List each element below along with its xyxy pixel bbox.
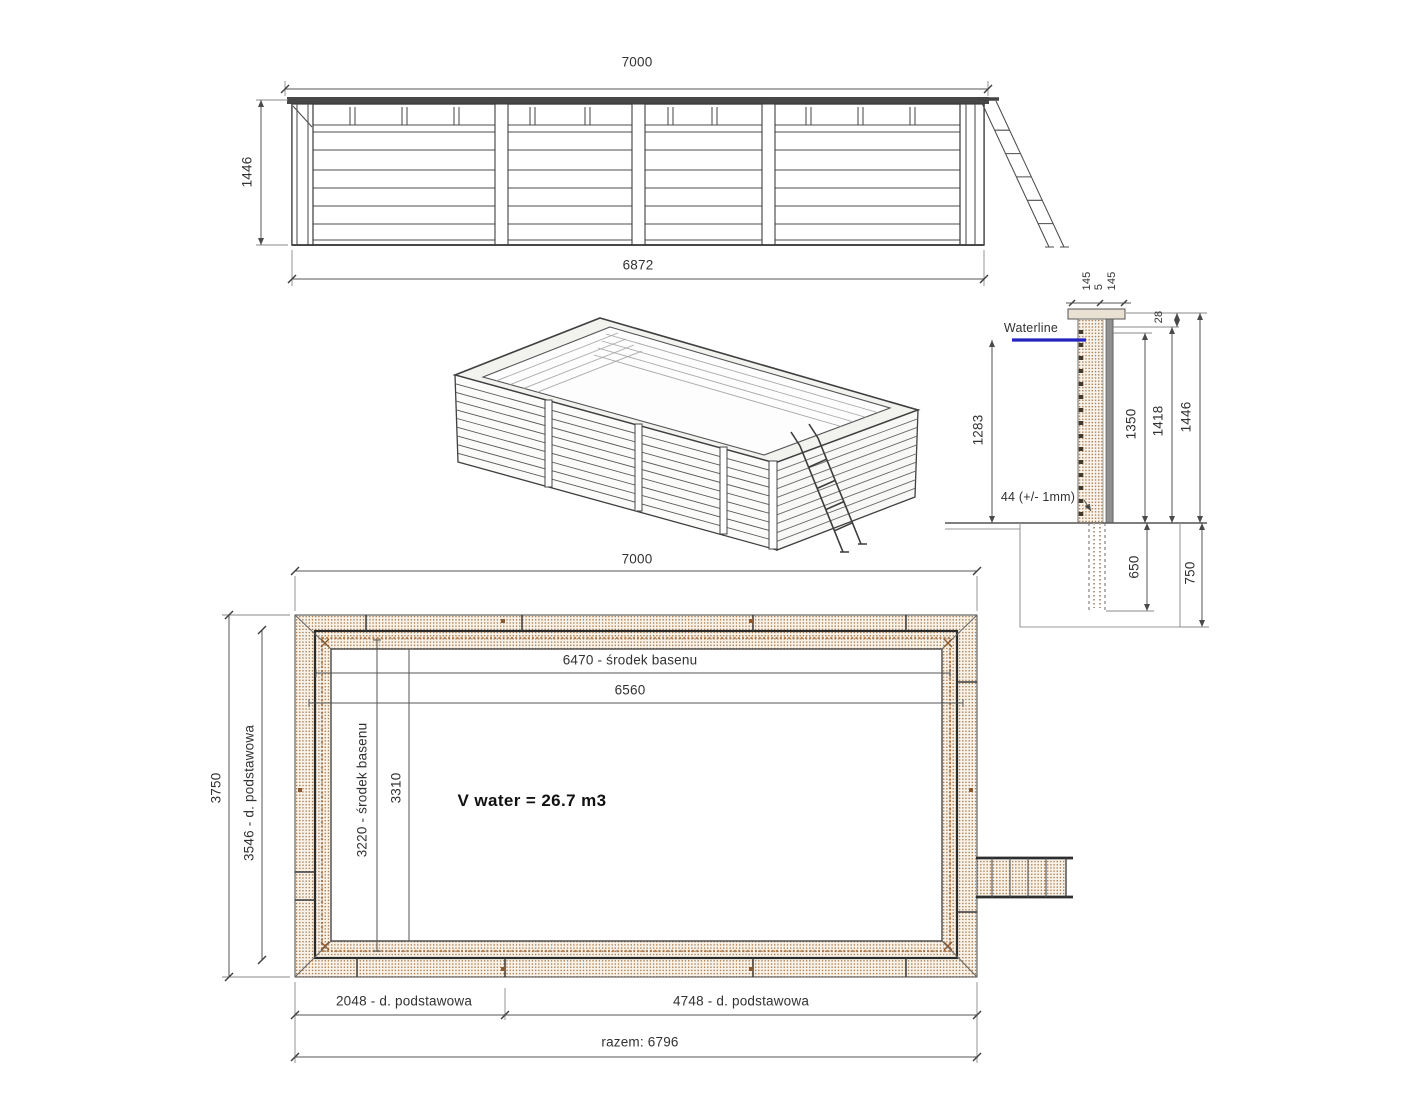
waterline-label: Waterline [1004,321,1058,335]
section-cap-dim-right: 145 [1106,272,1118,291]
plan-dim-3546: 3546 - d. podstawowa [242,725,257,861]
plan-dim-3310: 3310 [389,773,404,804]
plan-dim-3220: 3220 - środek basenu [355,723,370,858]
section-cap [1068,309,1125,319]
elevation-height-dim: 1446 [240,157,255,188]
section-dim-750: 750 [1183,561,1198,584]
plan-ladder [976,858,1073,897]
drawing-linework [0,0,1422,1100]
water-volume-label: V water = 26.7 m3 [457,791,606,811]
plan-dim-6560: 6560 [615,683,646,698]
plan-view [222,567,1073,1063]
plan-top-width-dim: 7000 [622,552,653,567]
section-note-44: 44 (+/- 1mm) [1001,490,1075,504]
section-dim-1418: 1418 [1151,406,1166,437]
isometric-view [455,318,918,552]
elevation-top-width-dim: 7000 [622,55,653,70]
plan-dim-4748: 4748 - d. podstawowa [673,994,809,1009]
section-cap-dim-mid: 5 [1093,284,1105,290]
plan-dim-3750: 3750 [209,773,224,804]
pool-technical-drawing: 7000 1446 6872 Waterline 145 5 145 28 12… [0,0,1422,1100]
elevation-bottom-width-dim: 6872 [623,258,654,273]
section-view [945,300,1209,627]
section-dim-1446: 1446 [1179,402,1194,433]
section-dim-1283: 1283 [971,415,986,446]
section-dim-28: 28 [1153,311,1165,324]
section-dim-1350: 1350 [1124,409,1139,440]
section-liner [1106,319,1113,523]
elevation-ladder [978,99,1069,247]
section-dim-650: 650 [1127,555,1142,578]
plan-total-dim: razem: 6796 [601,1035,678,1050]
plan-dim-6470: 6470 - środek basenu [563,653,698,668]
plan-dim-2048: 2048 - d. podstawowa [336,994,472,1009]
elevation-view [256,81,1069,286]
section-cap-dim-left: 145 [1081,272,1093,291]
